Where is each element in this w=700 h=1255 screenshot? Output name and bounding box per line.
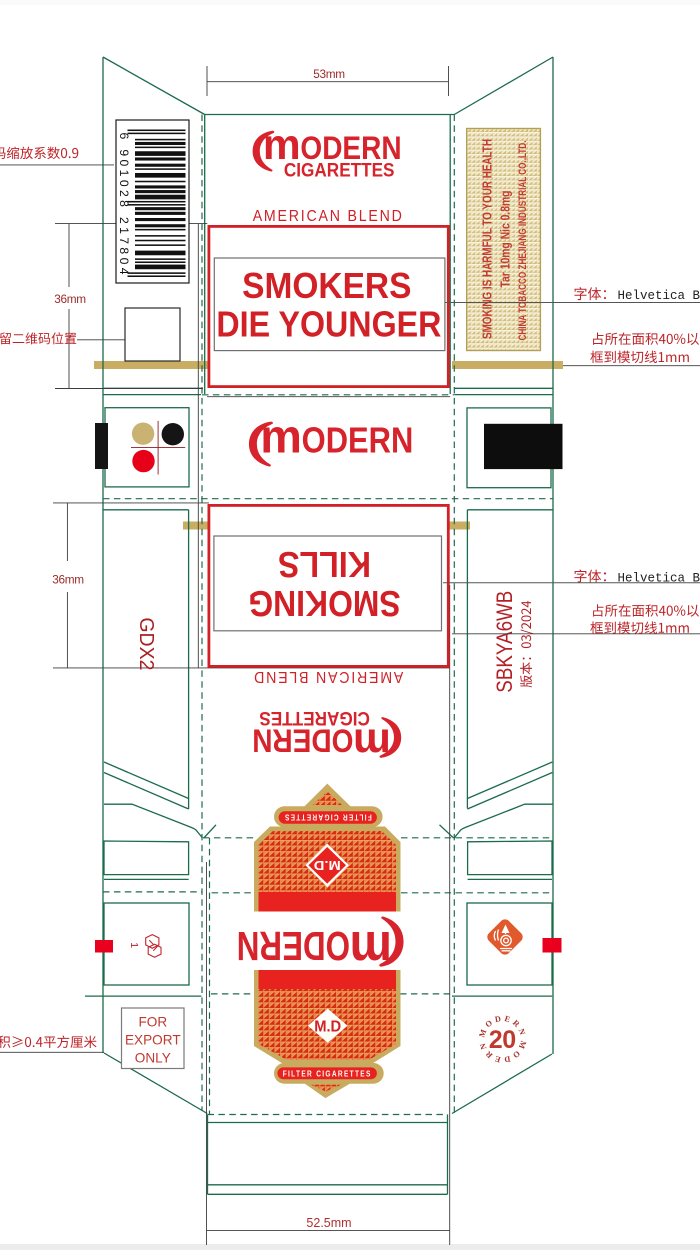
svg-text:M.D: M.D [314,858,341,873]
svg-text:SMOKING IS HARMFUL TO YOUR HEA: SMOKING IS HARMFUL TO YOUR HEALTH [480,139,495,339]
svg-text:36mm: 36mm [54,292,86,306]
svg-text:AMERICAN BLEND: AMERICAN BLEND [252,668,403,685]
svg-text:SBKYA6WB: SBKYA6WB [492,591,517,693]
svg-text:DIE YOUNGER: DIE YOUNGER [216,303,441,344]
svg-text:Tar 10mg Nic 0.8mg: Tar 10mg Nic 0.8mg [498,191,513,288]
svg-text:52.5mm: 52.5mm [306,1216,351,1230]
svg-text:M.D: M.D [314,1019,341,1036]
svg-text:SMOKERS: SMOKERS [242,265,411,306]
svg-text:20: 20 [489,1026,516,1054]
svg-text:EXPORT: EXPORT [125,1033,181,1048]
svg-text:Helvetica Bold: Helvetica Bold [618,289,700,303]
svg-text:Helvetica Bold: Helvetica Bold [618,571,700,585]
svg-text:ONLY: ONLY [135,1051,171,1066]
svg-text:36mm: 36mm [52,573,84,587]
svg-text:FILTER CIGARETTES: FILTER CIGARETTES [283,1070,372,1079]
svg-text:CHINA TOBACCO ZHEJIANG INDUSTR: CHINA TOBACCO ZHEJIANG INDUSTRIAL CO.,LT… [517,141,529,341]
svg-text:AMERICAN BLEND: AMERICAN BLEND [253,208,404,225]
svg-text:53mm: 53mm [313,67,345,81]
svg-text:SMOKING: SMOKING [248,583,400,624]
svg-text:GDX2: GDX2 [135,617,158,670]
svg-text:FOR: FOR [138,1015,167,1030]
svg-text:6 901028 217804: 6 901028 217804 [117,133,131,275]
svg-text:KILLS: KILLS [278,544,371,585]
svg-text:1: 1 [128,942,140,948]
svg-text:FILTER CIGARETTES: FILTER CIGARETTES [284,812,372,821]
